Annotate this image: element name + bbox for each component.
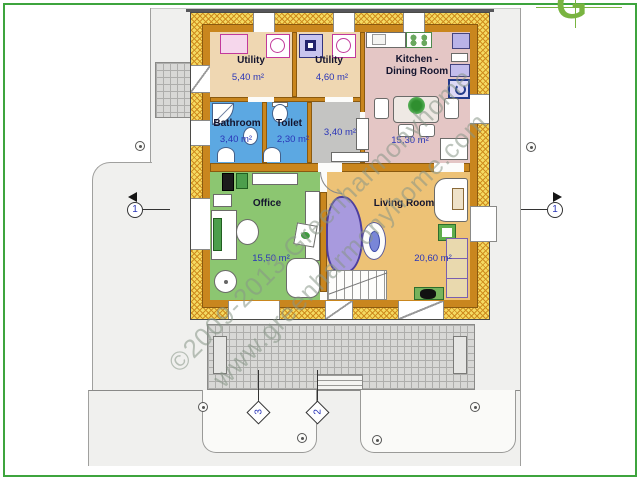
survey-point-icon xyxy=(372,435,382,445)
section-marker-line xyxy=(143,209,170,210)
washing-machine-icon xyxy=(266,34,290,58)
room-label-living: Living Room xyxy=(374,198,435,209)
window xyxy=(403,13,425,32)
room-label-bathroom: Bathroom xyxy=(213,118,260,129)
passage-opening xyxy=(434,163,464,172)
room-label-office: Office xyxy=(253,198,281,209)
window xyxy=(191,120,210,146)
chair-icon xyxy=(374,98,389,119)
office-shelf-icon xyxy=(222,173,234,191)
planter xyxy=(453,336,467,374)
section-marker-line xyxy=(521,209,547,210)
interior-wall xyxy=(292,32,297,97)
planter xyxy=(213,336,227,374)
hall-cabinet-icon xyxy=(331,152,369,162)
survey-point-icon xyxy=(526,142,536,152)
terrace-door xyxy=(325,301,353,319)
brand-logo: G xyxy=(548,0,612,30)
vase-icon xyxy=(369,231,380,252)
section-arrow-icon xyxy=(128,192,137,202)
boiler-icon xyxy=(448,79,470,99)
office-chair-icon xyxy=(236,219,259,245)
stove-icon xyxy=(406,32,432,48)
room-area-office: 15,50 m² xyxy=(252,253,290,264)
survey-point-icon xyxy=(135,141,145,151)
room-label-kitchen-line1: Kitchen - xyxy=(396,54,439,65)
section-arrow-icon xyxy=(553,192,562,202)
room-area-utility1: 5,40 m² xyxy=(232,72,264,83)
room-area-hall: 3,40 m² xyxy=(324,127,356,138)
office-shelf-icon xyxy=(236,173,248,189)
room-area-living: 20,60 m² xyxy=(414,253,452,264)
room-area-utility2: 4,60 m² xyxy=(316,72,348,83)
window xyxy=(333,13,355,32)
floor-plan-page: Utility 5,40 m² Utility 4,60 m² Kitchen … xyxy=(0,0,640,480)
lot-boundary-line xyxy=(520,8,521,466)
terrace-door xyxy=(398,301,444,319)
lot-boundary-line xyxy=(150,8,151,162)
kitchen-appliance-icon xyxy=(450,64,470,77)
survey-point-icon xyxy=(297,433,307,443)
room-label-utility2: Utility xyxy=(315,55,343,66)
fridge-icon xyxy=(452,33,470,49)
door-opening xyxy=(248,97,274,102)
door-opening xyxy=(318,163,342,172)
door-swing-icon xyxy=(217,147,235,162)
section-marker-1-right: 1 xyxy=(547,202,563,218)
room-area-kitchen: 15,30 m² xyxy=(391,135,429,146)
survey-point-icon xyxy=(470,402,480,412)
room-area-bathroom: 3,40 m² xyxy=(220,134,252,145)
plant-icon xyxy=(408,97,425,114)
window xyxy=(191,198,210,250)
terrace-door-landing xyxy=(470,206,497,242)
marker-leader-line xyxy=(317,370,318,404)
utility-cabinet-icon xyxy=(220,34,248,54)
chair-icon xyxy=(444,98,459,119)
kitchen-appliance-icon xyxy=(451,53,468,62)
tv-icon xyxy=(420,289,436,299)
window xyxy=(253,13,275,32)
terrace-steps xyxy=(317,374,363,390)
console-box-icon xyxy=(452,188,464,210)
computer-icon xyxy=(213,218,222,251)
section-marker-1-left: 1 xyxy=(127,202,143,218)
room-label-kitchen-line2: Dining Room xyxy=(386,66,448,77)
room-area-toilet: 2,30 m² xyxy=(277,134,309,145)
kitchen-island-icon xyxy=(440,138,468,160)
office-shelf-icon xyxy=(252,173,298,185)
plant-table-icon xyxy=(293,222,318,247)
room-label-utility1: Utility xyxy=(237,55,265,66)
armchair-icon xyxy=(286,258,320,298)
lot-area-left xyxy=(92,162,152,390)
survey-point-icon xyxy=(198,402,208,412)
round-table-icon xyxy=(214,270,237,293)
window xyxy=(228,301,280,319)
door-swing-icon xyxy=(263,147,281,162)
entrance-door xyxy=(191,65,210,93)
entrance-porch xyxy=(155,62,192,118)
room-label-toilet: Toilet xyxy=(276,118,302,129)
interior-wall xyxy=(307,102,312,163)
window xyxy=(470,94,489,124)
logo-g-icon: G xyxy=(556,0,587,28)
kitchen-sink-icon xyxy=(372,34,386,45)
door-opening xyxy=(325,97,353,102)
marker-leader-line xyxy=(258,370,259,404)
shelving-unit-icon xyxy=(446,238,468,298)
driveway-path xyxy=(360,390,516,453)
side-table-icon xyxy=(213,194,232,207)
hall-cabinet-icon xyxy=(356,118,369,150)
